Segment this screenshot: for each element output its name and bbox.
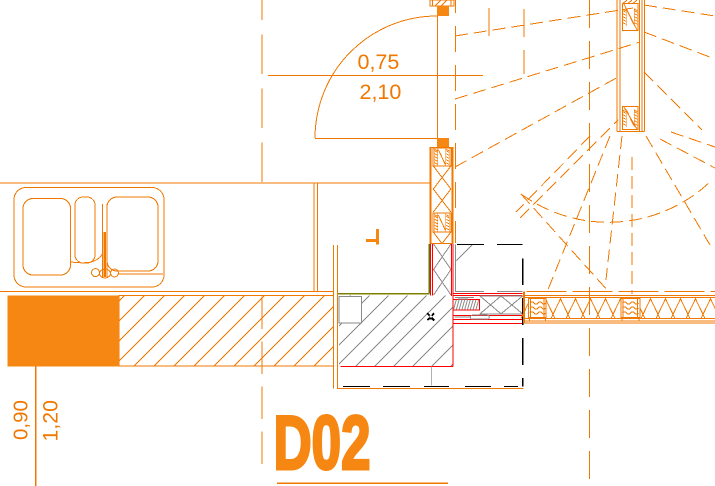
svg-text:D02: D02 — [274, 401, 371, 486]
svg-text:2,10: 2,10 — [360, 80, 402, 104]
svg-text:1,20: 1,20 — [39, 400, 63, 442]
svg-text:0,90: 0,90 — [10, 400, 33, 440]
svg-text:0,75: 0,75 — [358, 50, 400, 74]
